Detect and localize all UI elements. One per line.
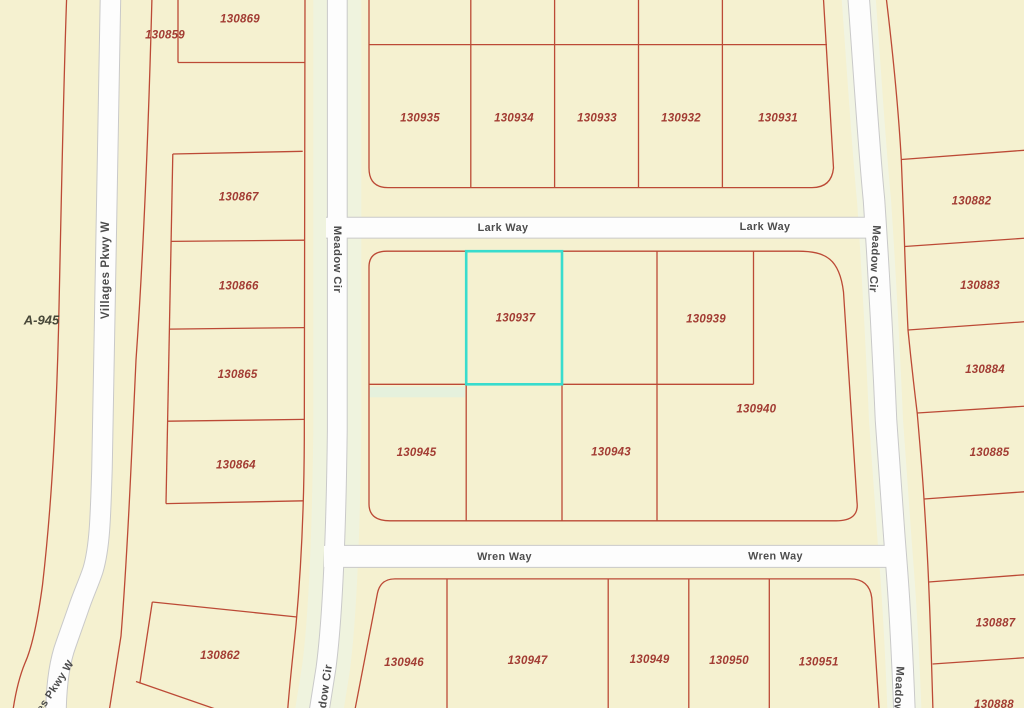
svg-text:130885: 130885 <box>970 447 1010 459</box>
svg-text:130946: 130946 <box>384 657 424 669</box>
svg-text:Lark Way: Lark Way <box>740 221 791 233</box>
svg-text:130884: 130884 <box>965 364 1005 376</box>
svg-text:130867: 130867 <box>219 192 259 204</box>
svg-text:Wren Way: Wren Way <box>748 551 803 563</box>
svg-text:130945: 130945 <box>397 447 437 459</box>
svg-text:130931: 130931 <box>758 112 798 124</box>
svg-text:130888: 130888 <box>974 699 1014 708</box>
svg-text:130950: 130950 <box>709 655 749 667</box>
svg-text:130887: 130887 <box>976 617 1016 629</box>
svg-text:130882: 130882 <box>952 195 992 207</box>
svg-text:130937: 130937 <box>496 312 536 324</box>
svg-text:130866: 130866 <box>219 280 259 292</box>
svg-text:130949: 130949 <box>630 654 670 666</box>
svg-text:130935: 130935 <box>400 112 440 124</box>
svg-text:130869: 130869 <box>220 14 260 26</box>
svg-text:130933: 130933 <box>577 112 617 124</box>
svg-text:130864: 130864 <box>216 459 256 471</box>
svg-text:130862: 130862 <box>200 650 240 662</box>
svg-text:Wren Way: Wren Way <box>477 551 532 563</box>
svg-text:130934: 130934 <box>494 112 534 124</box>
svg-text:130859: 130859 <box>145 29 185 41</box>
svg-text:130947: 130947 <box>508 655 548 667</box>
svg-text:130940: 130940 <box>736 404 776 416</box>
svg-text:Villages Pkwy W: Villages Pkwy W <box>100 221 112 319</box>
svg-text:130932: 130932 <box>661 112 701 124</box>
svg-text:A-945: A-945 <box>23 312 60 327</box>
svg-text:130865: 130865 <box>218 369 258 381</box>
svg-text:130951: 130951 <box>799 656 839 668</box>
svg-text:130939: 130939 <box>686 313 726 325</box>
svg-text:130943: 130943 <box>591 446 631 458</box>
svg-text:Lark Way: Lark Way <box>478 222 529 234</box>
svg-text:Meadow Cir: Meadow Cir <box>331 226 343 294</box>
svg-text:130883: 130883 <box>960 280 1000 292</box>
